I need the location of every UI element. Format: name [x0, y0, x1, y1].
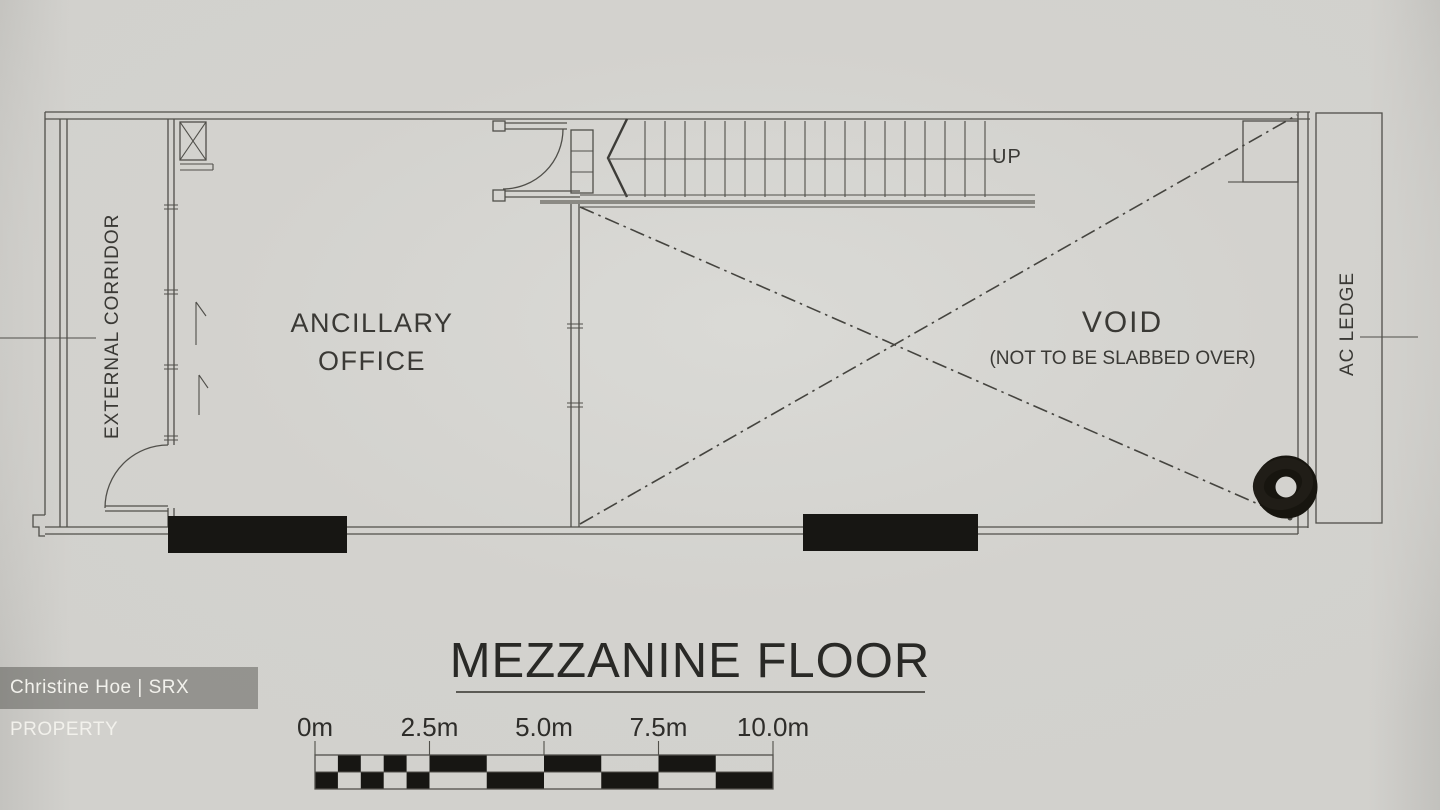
ancillary-office-line1: ANCILLARY — [222, 304, 522, 342]
external-corridor-label: EXTERNAL CORRIDOR — [102, 219, 124, 439]
scale-cell — [338, 755, 361, 772]
scale-cell — [544, 755, 601, 772]
scale-cell — [716, 772, 773, 789]
scale-cell — [659, 755, 716, 772]
void-note-label: (NOT TO BE SLABBED OVER) — [967, 348, 1278, 370]
scale-cell — [407, 772, 430, 789]
floor-plan-photo: EXTERNAL CORRIDOR ANCILLARY OFFICE UP VO… — [0, 0, 1440, 810]
boundary-notch — [33, 515, 45, 536]
scale-cell — [384, 755, 407, 772]
scale-label: 10.0m — [737, 712, 809, 743]
title-underline — [456, 691, 925, 693]
solid-wall-left — [168, 516, 347, 553]
ancillary-office-line2: OFFICE — [222, 342, 522, 380]
scale-cell — [361, 772, 384, 789]
scale-label: 7.5m — [630, 712, 688, 743]
scale-cell — [601, 772, 658, 789]
scale-label: 0m — [297, 712, 333, 743]
stair-door-arc — [503, 129, 563, 189]
scale-label: 5.0m — [515, 712, 573, 743]
scale-label: 2.5m — [401, 712, 459, 743]
stairs-up-label: UP — [992, 146, 1022, 169]
stair-break-line — [608, 119, 627, 197]
scale-bar — [315, 741, 773, 789]
watermark: Christine Hoe | SRX PROPERTY — [0, 667, 258, 709]
office-left-wall — [164, 119, 178, 527]
corner-column-box — [1228, 121, 1298, 182]
page-title: MEZZANINE FLOOR — [390, 633, 990, 689]
hatched-column — [180, 122, 213, 170]
staircase — [493, 119, 1035, 207]
void-label: VOID — [970, 306, 1275, 340]
scale-cell — [315, 772, 338, 789]
solid-wall-right — [803, 514, 978, 551]
marker-scribble — [1253, 457, 1313, 510]
ancillary-office-label: ANCILLARY OFFICE — [222, 304, 522, 380]
corridor-door — [105, 445, 168, 511]
wall-cap-bottom — [493, 190, 505, 201]
wall-cap-top — [493, 121, 505, 131]
swing-arrows — [196, 302, 208, 415]
ac-ledge-label: AC LEDGE — [1337, 244, 1359, 404]
corridor-wall — [0, 119, 96, 527]
scale-cell — [487, 772, 544, 789]
scale-cell — [430, 755, 487, 772]
riser-cabinet — [571, 130, 593, 193]
office-right-wall — [567, 203, 583, 527]
ac-ledge-strip — [1316, 113, 1418, 523]
